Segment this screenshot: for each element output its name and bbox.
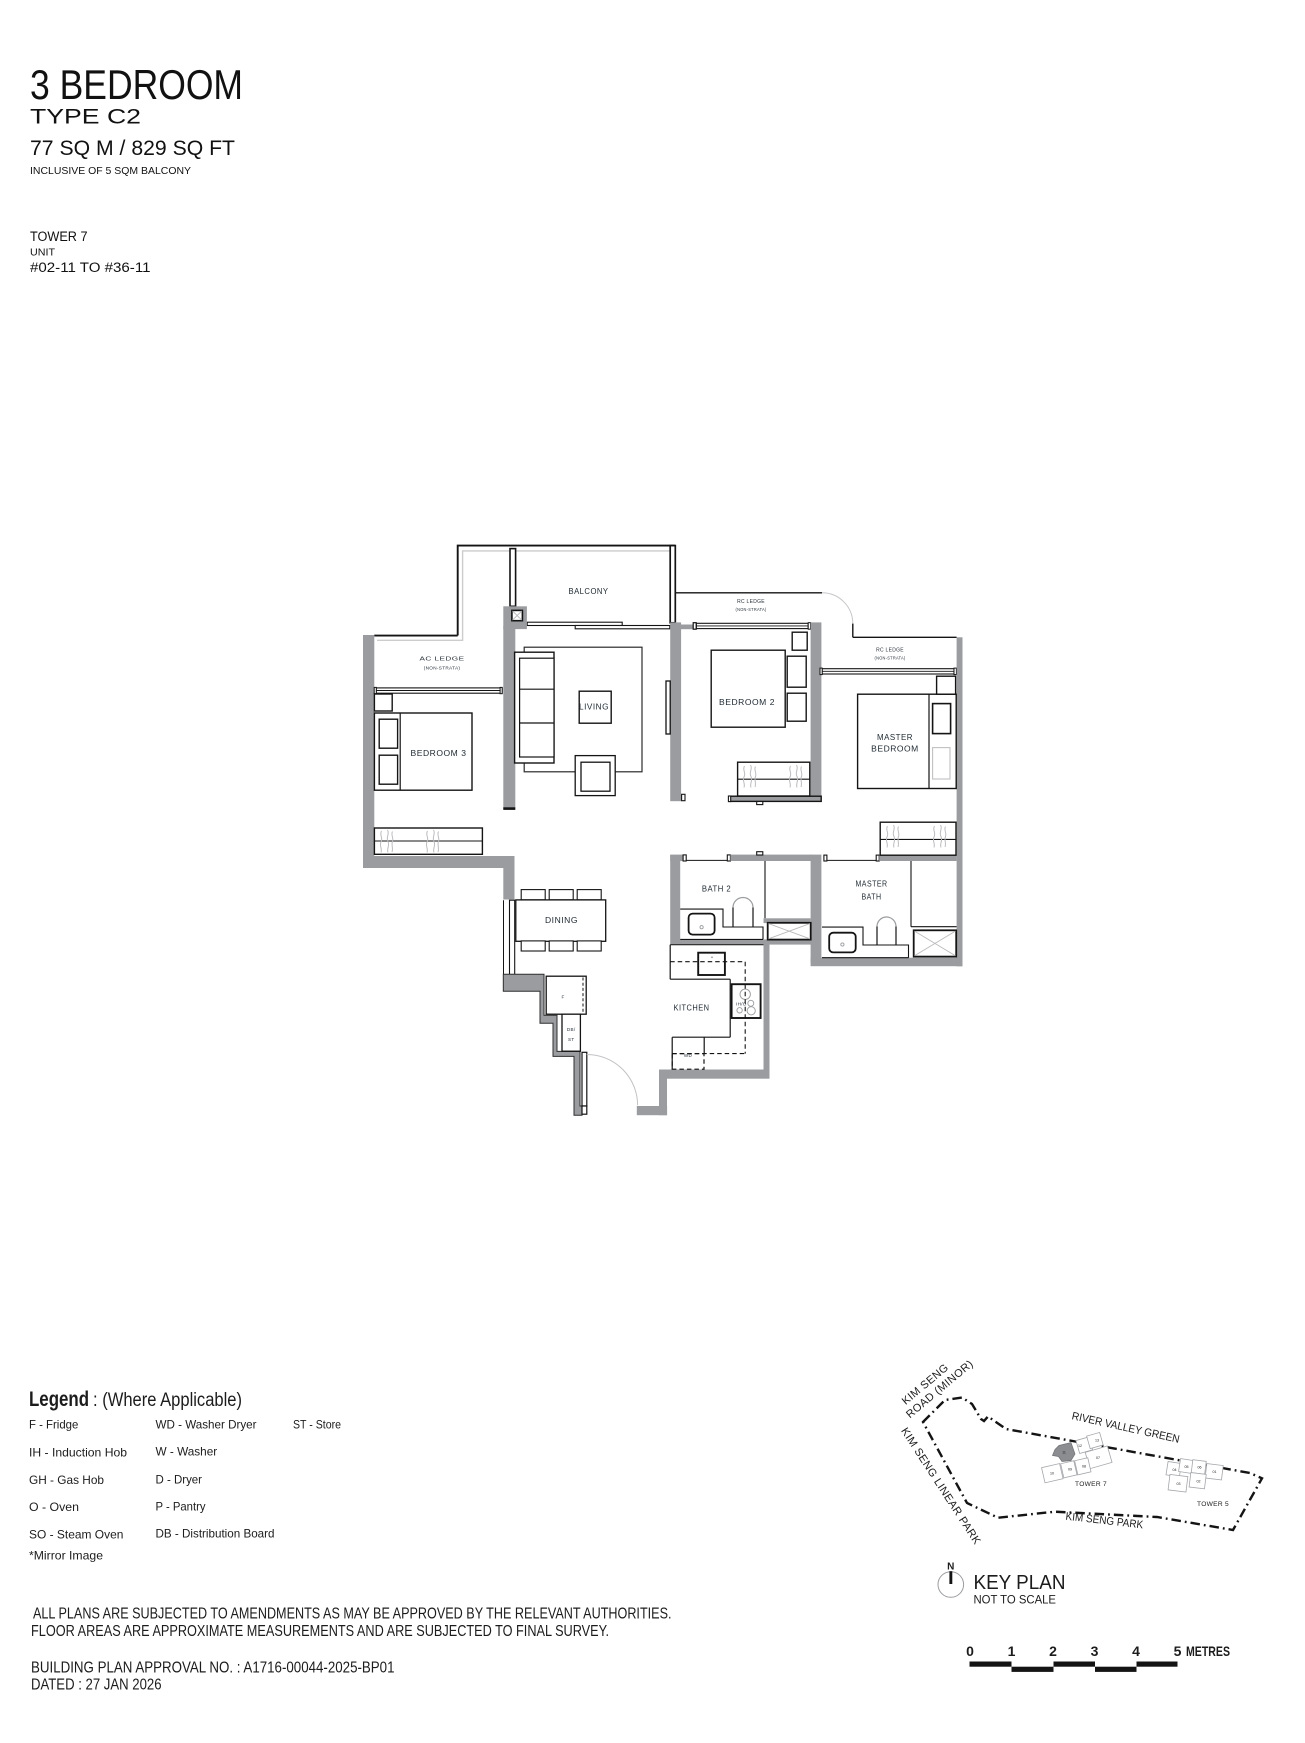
svg-text:FLOOR AREAS ARE APPROXIMATE ME: FLOOR AREAS ARE APPROXIMATE MEASUREMENTS… (31, 1623, 609, 1640)
svg-text:P - Pantry: P - Pantry (156, 1500, 206, 1514)
svg-text:BALCONY: BALCONY (569, 587, 609, 596)
svg-text:5: 5 (1174, 1643, 1182, 1659)
svg-text:3: 3 (1091, 1643, 1099, 1659)
svg-text:ST - Store: ST - Store (293, 1418, 341, 1432)
svg-text:(NON-STRATA): (NON-STRATA) (875, 656, 906, 661)
svg-text:BEDROOM 2: BEDROOM 2 (719, 698, 775, 707)
svg-text:INCLUSIVE OF 5 SQM BALCONY: INCLUSIVE OF 5 SQM BALCONY (30, 165, 191, 177)
svg-text:Legend: Legend (29, 1388, 89, 1411)
svg-text:: (Where Applicable): : (Where Applicable) (93, 1390, 242, 1411)
svg-text:WD - Washer Dryer: WD - Washer Dryer (156, 1418, 257, 1432)
svg-text:04: 04 (1173, 1468, 1177, 1472)
svg-text:(NON-STRATA): (NON-STRATA) (424, 666, 461, 671)
svg-text:F: F (561, 995, 564, 1000)
svg-text:10: 10 (1050, 1472, 1054, 1476)
svg-text:BEDROOM: BEDROOM (871, 745, 919, 754)
svg-text:2: 2 (1049, 1643, 1057, 1659)
svg-text:O - Oven: O - Oven (29, 1500, 79, 1514)
svg-text:SO - Steam Oven: SO - Steam Oven (29, 1528, 123, 1542)
svg-text:TOWER 7: TOWER 7 (1075, 1481, 1107, 1488)
svg-text:N: N (947, 1562, 954, 1573)
svg-text:D - Dryer: D - Dryer (156, 1473, 203, 1487)
svg-text:IH - Induction Hob: IH - Induction Hob (29, 1446, 127, 1460)
svg-text:DB - Distribution Board: DB - Distribution Board (156, 1527, 275, 1541)
svg-text:#02-11 TO #36-11: #02-11 TO #36-11 (30, 260, 151, 275)
svg-text:KEY PLAN: KEY PLAN (974, 1572, 1066, 1594)
svg-text:05: 05 (1185, 1465, 1189, 1469)
svg-text:11: 11 (1062, 1451, 1066, 1455)
svg-text:DATED : 27 JAN 2026: DATED : 27 JAN 2026 (31, 1677, 162, 1694)
svg-text:ALL PLANS ARE SUBJECTED TO AME: ALL PLANS ARE SUBJECTED TO AMENDMENTS AS… (33, 1606, 672, 1623)
svg-text:RC LEDGE: RC LEDGE (737, 599, 765, 605)
svg-text:GH - Gas Hob: GH - Gas Hob (29, 1473, 104, 1487)
svg-text:13: 13 (1095, 1439, 1099, 1443)
svg-text:08: 08 (1082, 1465, 1086, 1469)
svg-text:01: 01 (1213, 1470, 1217, 1474)
svg-text:ST: ST (568, 1037, 574, 1042)
svg-text:02: 02 (1197, 1480, 1201, 1484)
svg-text:77 SQ M / 829 SQ FT: 77 SQ M / 829 SQ FT (30, 137, 235, 160)
svg-text:1: 1 (1008, 1643, 1016, 1659)
svg-text:KITCHEN: KITCHEN (674, 1004, 710, 1013)
svg-text:W - Washer: W - Washer (156, 1445, 218, 1459)
svg-text:WD: WD (684, 1053, 693, 1058)
svg-text:03: 03 (1177, 1482, 1181, 1486)
svg-text:DINING: DINING (545, 916, 578, 925)
svg-text:MASTER: MASTER (877, 733, 913, 742)
svg-text:F - Fridge: F - Fridge (29, 1418, 79, 1432)
svg-text:BATH: BATH (862, 893, 882, 902)
svg-text:NOT TO SCALE: NOT TO SCALE (974, 1595, 1057, 1607)
svg-text:TOWER 7: TOWER 7 (30, 229, 88, 244)
svg-text:BEDROOM 3: BEDROOM 3 (411, 749, 467, 758)
svg-text:TYPE C2: TYPE C2 (30, 106, 141, 129)
svg-text:09: 09 (1068, 1468, 1072, 1472)
svg-text:0: 0 (966, 1643, 974, 1659)
svg-text:4: 4 (1132, 1643, 1140, 1659)
svg-text:BATH 2: BATH 2 (702, 885, 731, 894)
svg-text:*Mirror Image: *Mirror Image (29, 1549, 103, 1563)
svg-text:12: 12 (1078, 1444, 1082, 1448)
svg-text:AC LEDGE: AC LEDGE (420, 657, 465, 663)
svg-text:UNIT: UNIT (30, 248, 55, 259)
svg-text:BUILDING PLAN APPROVAL NO. : A: BUILDING PLAN APPROVAL NO. : A1716-00044… (31, 1660, 395, 1677)
svg-text:3 BEDROOM: 3 BEDROOM (30, 61, 243, 108)
svg-text:07: 07 (1096, 1456, 1100, 1460)
svg-text:TOWER 5: TOWER 5 (1197, 1501, 1229, 1508)
svg-text:METRES: METRES (1186, 1643, 1230, 1659)
svg-text:RC LEDGE: RC LEDGE (876, 648, 904, 654)
svg-text:MASTER: MASTER (856, 880, 888, 889)
svg-text:LIVING: LIVING (579, 703, 609, 712)
svg-text:06: 06 (1198, 1466, 1202, 1470)
svg-text:DB/: DB/ (567, 1027, 576, 1032)
svg-text:(NON-STRATA): (NON-STRATA) (736, 607, 767, 612)
